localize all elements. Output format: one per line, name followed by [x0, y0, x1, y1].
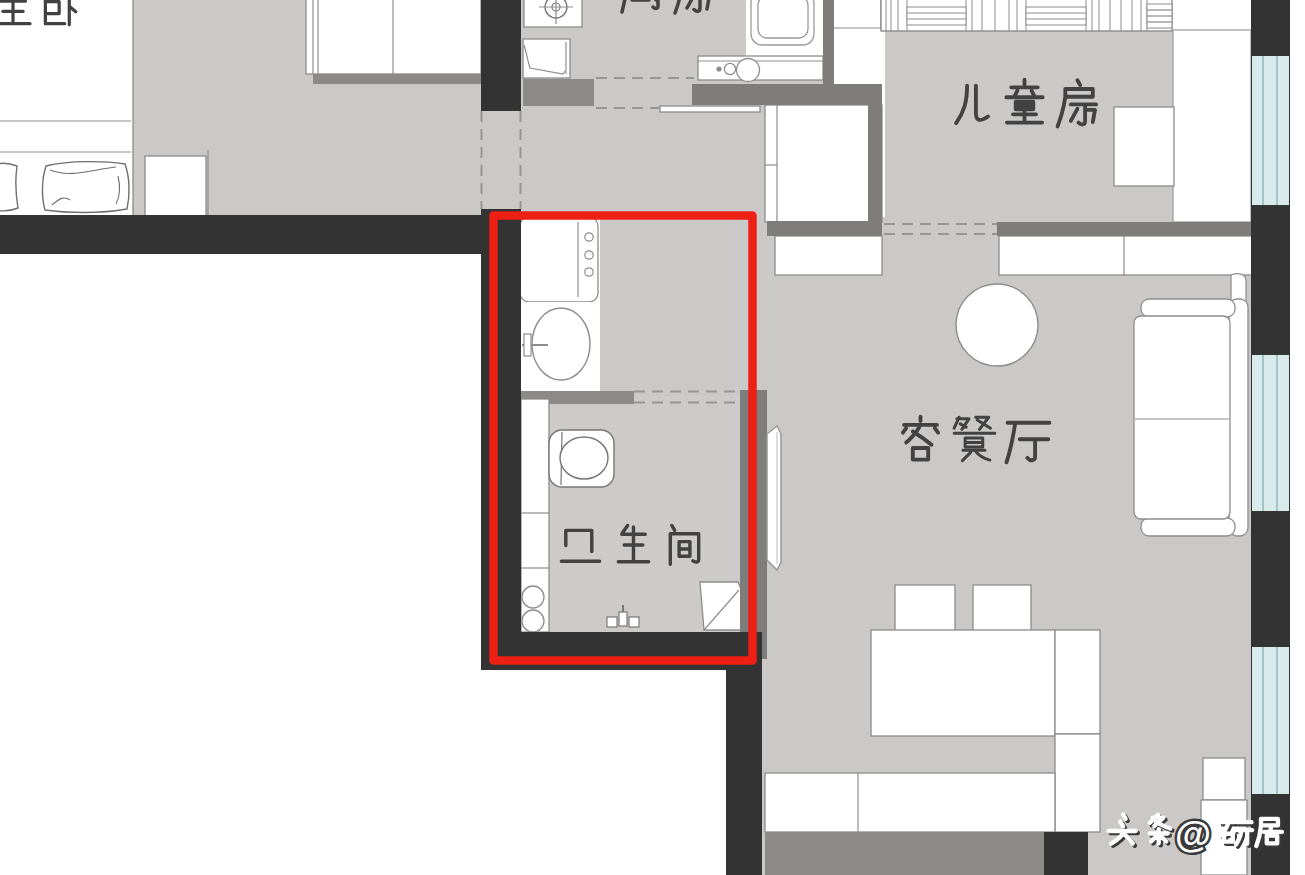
svg-text:@: @: [1175, 814, 1211, 855]
